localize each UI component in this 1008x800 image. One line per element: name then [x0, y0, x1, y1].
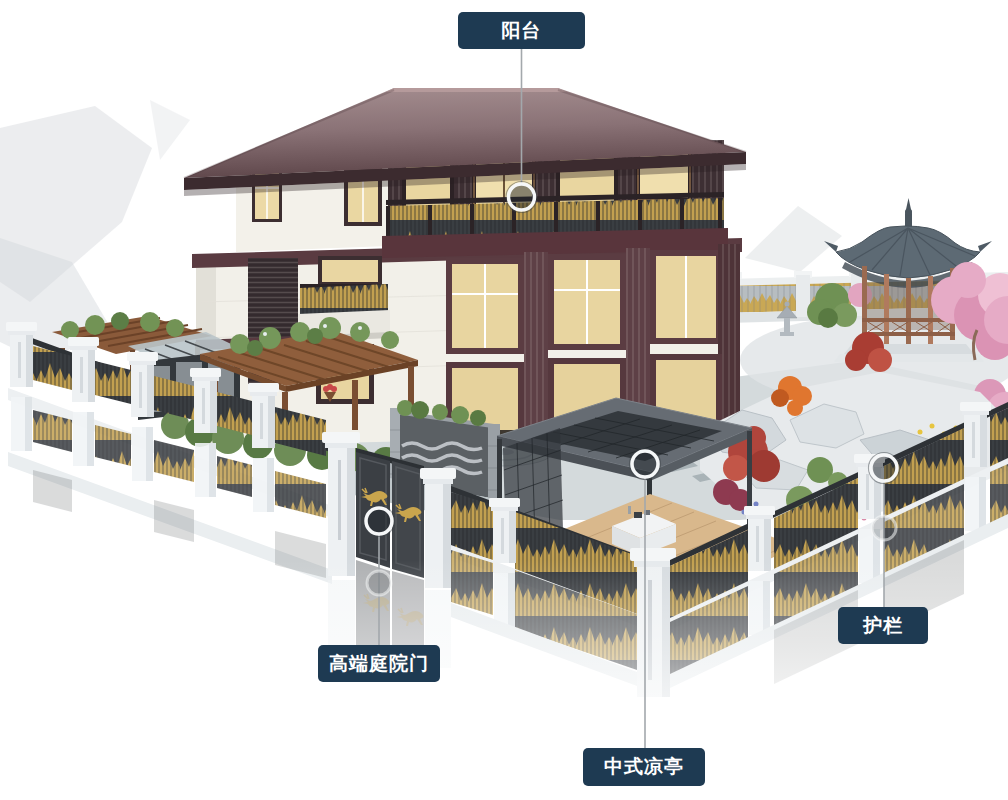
hotspot-marker-guardrail[interactable] — [871, 455, 897, 481]
hotspot-marker-gate[interactable] — [366, 508, 392, 534]
hotspot-echo-guardrail — [872, 516, 896, 540]
hotspot-echo-gate — [367, 571, 391, 595]
callout-label-balcony[interactable]: 阳台 — [458, 12, 585, 49]
callout-label-guardrail[interactable]: 护栏 — [838, 607, 928, 644]
hotspot-marker-pavilion[interactable] — [632, 451, 658, 477]
villa-courtyard-annotated-rendering: 阳台 高端庭院门 中式凉亭 护栏 — [0, 0, 1008, 800]
callout-label-pavilion[interactable]: 中式凉亭 — [583, 748, 705, 786]
scene-illustration — [0, 0, 1008, 800]
reflection-fade — [0, 560, 1008, 800]
second-floor-windows — [446, 250, 722, 354]
callout-label-gate[interactable]: 高端庭院门 — [318, 645, 440, 682]
hotspot-marker-balcony[interactable] — [509, 184, 535, 210]
